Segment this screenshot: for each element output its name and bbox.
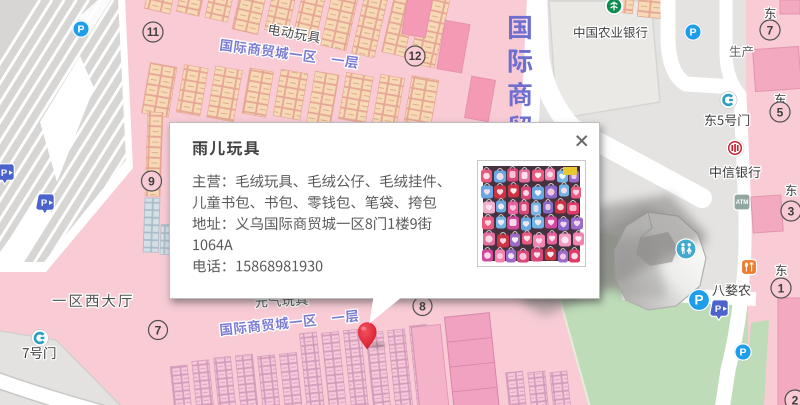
svg-text:P: P: [41, 198, 48, 209]
svg-text:7: 7: [767, 23, 774, 37]
svg-text:1: 1: [778, 281, 785, 295]
svg-text:P: P: [739, 347, 746, 359]
svg-text:P: P: [715, 304, 722, 315]
svg-text:P: P: [77, 24, 84, 36]
svg-text:8: 8: [419, 299, 426, 313]
svg-text:11: 11: [147, 27, 160, 39]
svg-text:ATM: ATM: [736, 200, 749, 206]
svg-text:9: 9: [148, 174, 155, 188]
svg-text:P: P: [689, 27, 696, 39]
svg-text:12: 12: [409, 51, 422, 63]
svg-text:P: P: [1, 168, 8, 179]
svg-text:P: P: [694, 293, 703, 308]
svg-text:3: 3: [788, 204, 795, 218]
svg-text:5: 5: [777, 105, 784, 119]
svg-text:2: 2: [792, 393, 799, 405]
svg-text:7: 7: [155, 323, 162, 337]
